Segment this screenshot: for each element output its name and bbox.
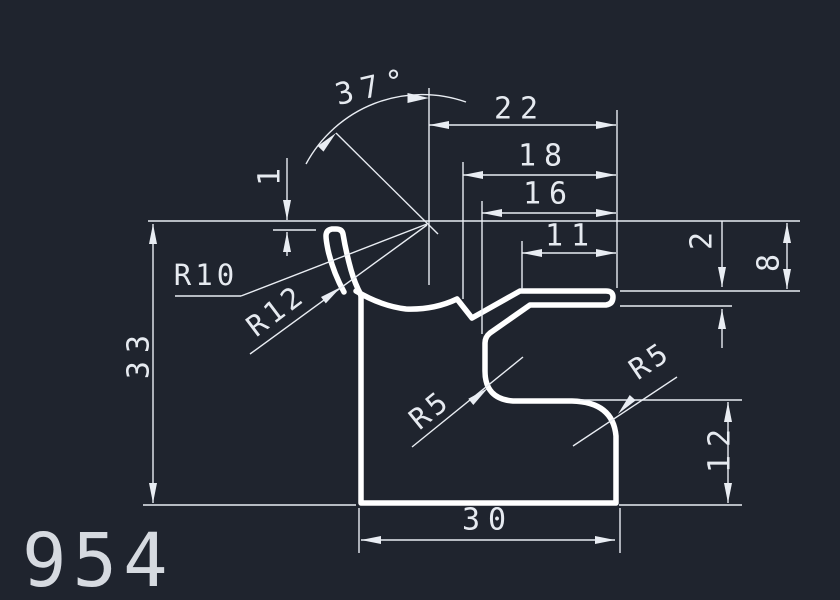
dim-text-30: 30 [462, 503, 514, 538]
dim-text-12: 12 [703, 421, 738, 473]
dim-text-33: 33 [122, 327, 157, 379]
dim-text-18: 18 [518, 139, 570, 174]
dim-text-8: 8 [752, 246, 787, 272]
cad-viewport[interactable]: 37° 22 18 16 11 30 1 33 2 8 12 R10 R12 R… [0, 0, 840, 600]
dim-text-16: 16 [523, 177, 575, 212]
dim-text-22: 22 [494, 92, 546, 127]
radius-text-r10: R10 [174, 258, 238, 292]
drawing-background [0, 0, 840, 600]
dim-text-2: 2 [685, 224, 720, 250]
part-number: 954 [22, 518, 174, 600]
dim-text-1: 1 [253, 160, 288, 186]
dim-text-11: 11 [545, 219, 597, 254]
